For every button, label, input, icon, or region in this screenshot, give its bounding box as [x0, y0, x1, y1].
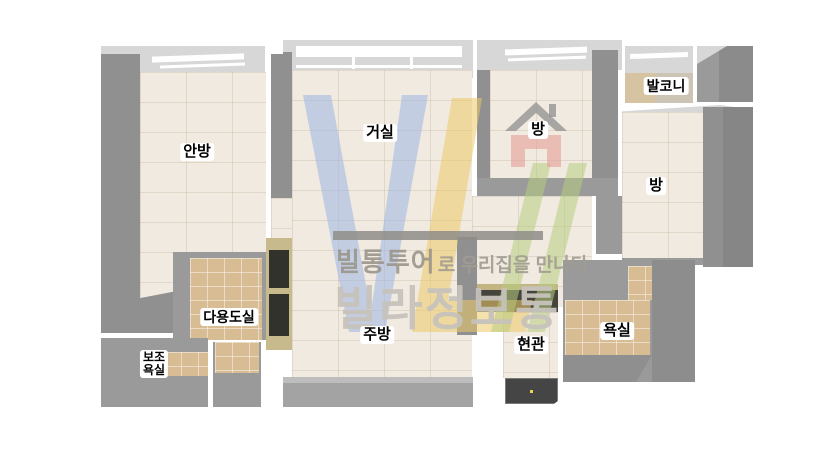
living-room-window-sill	[296, 65, 462, 68]
room-label-balcony: 발코니	[644, 77, 689, 95]
entrance-mat	[505, 378, 558, 404]
room-label-entrance: 현관	[514, 336, 548, 354]
mat-dot-icon	[530, 390, 533, 393]
bathroom-right-wall	[652, 260, 695, 382]
room-label-right-room: 방	[646, 177, 666, 195]
kitchen-bottom-wall-edge	[283, 377, 473, 383]
master-bedroom-door-opening	[271, 198, 292, 242]
master-bedroom-left-wall	[101, 54, 140, 333]
hallway-right-wall	[596, 196, 622, 254]
room-label-living-room: 거실	[363, 124, 397, 142]
right-room-right-wall-shade	[723, 107, 753, 267]
room-label-utility-room: 다용도실	[200, 308, 258, 326]
sub-bathroom-floor	[164, 352, 208, 376]
room-label-center-room: 방	[528, 121, 548, 139]
living-room-left-wall	[283, 52, 292, 174]
living-room-window-icon	[296, 46, 462, 57]
balcony-side-wall-shade	[719, 46, 753, 102]
room-label-sub-bathroom: 보조 욕실	[140, 350, 168, 378]
cabinet-panel	[269, 250, 289, 288]
bathroom-floor-upper	[628, 266, 652, 300]
floor-plan: 빌통투어 로 우리집을 만나다 빌라정보통 안방 거실 방 발코니 방 다용도실…	[0, 0, 840, 472]
balcony-top-wall	[625, 46, 693, 73]
room-label-master-bedroom: 안방	[180, 143, 214, 161]
utility-room-floor	[215, 342, 259, 373]
sub-bathroom-line2: 욕실	[143, 364, 165, 377]
kitchen-cabinet	[266, 238, 292, 350]
room-label-bathroom: 욕실	[600, 322, 634, 340]
cabinet-panel	[269, 294, 289, 336]
utility-room-floor	[190, 258, 262, 340]
center-room-left-wall	[477, 70, 490, 190]
room-label-kitchen: 주방	[360, 326, 394, 344]
center-room-bottom-wall	[477, 178, 618, 196]
center-room-right-wall	[592, 50, 618, 196]
